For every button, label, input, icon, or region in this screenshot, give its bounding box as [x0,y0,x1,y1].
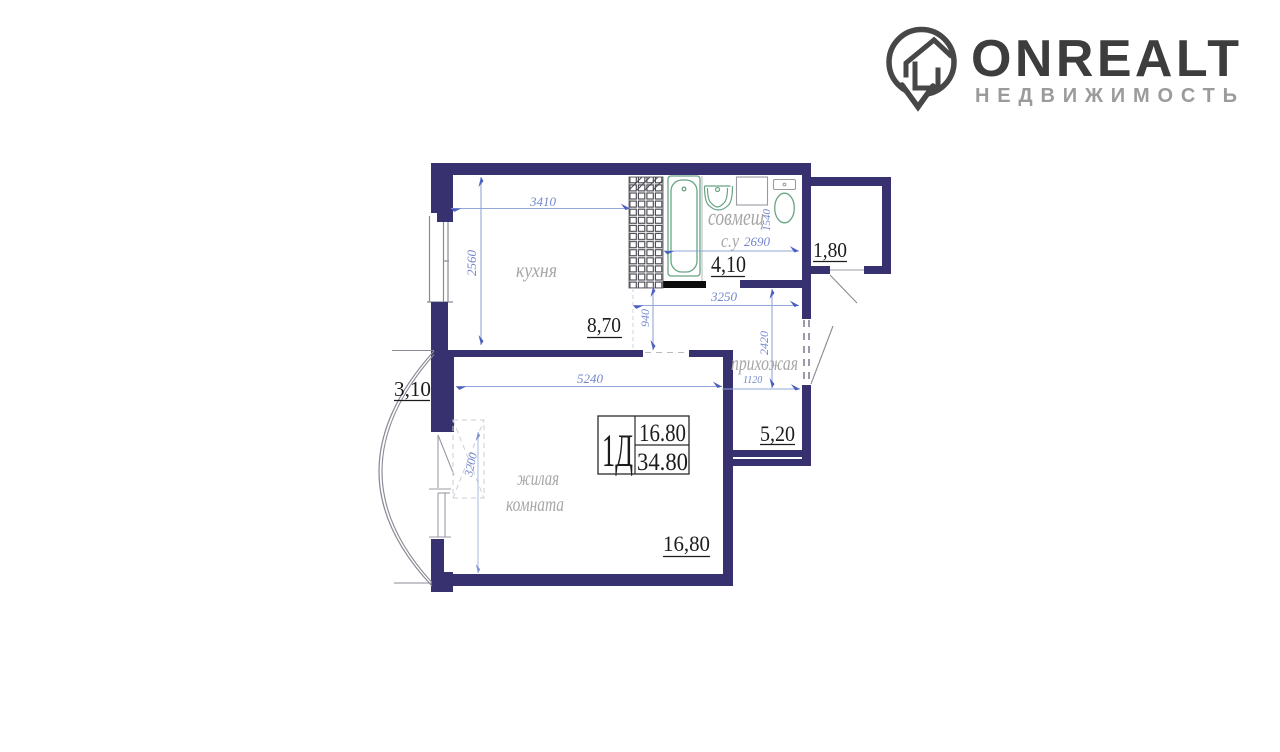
svg-text:5240: 5240 [577,371,604,386]
svg-text:кухня: кухня [516,260,557,282]
svg-text:ONREALT: ONREALT [971,30,1239,88]
svg-text:3,10: 3,10 [394,377,431,401]
svg-text:5,20: 5,20 [760,421,795,446]
svg-text:жилая: жилая [517,468,559,490]
svg-text:совмещ: совмещ [708,205,764,231]
svg-text:1,80: 1,80 [813,238,847,262]
svg-text:3410: 3410 [529,194,557,209]
svg-text:4,10: 4,10 [711,252,746,277]
svg-text:1Д: 1Д [602,425,633,477]
svg-text:прихожая: прихожая [731,353,798,375]
svg-text:2690: 2690 [744,234,771,249]
svg-text:940: 940 [638,309,652,327]
svg-text:комната: комната [506,494,564,516]
svg-text:16.80: 16.80 [639,420,686,447]
svg-text:1120: 1120 [743,375,762,386]
svg-text:2560: 2560 [464,250,479,277]
svg-text:2420: 2420 [757,331,771,355]
svg-text:16,80: 16,80 [663,531,710,556]
svg-text:с.у: с.у [721,231,739,252]
svg-text:34.80: 34.80 [637,449,688,476]
svg-text:3250: 3250 [710,289,738,304]
svg-text:8,70: 8,70 [587,313,621,337]
